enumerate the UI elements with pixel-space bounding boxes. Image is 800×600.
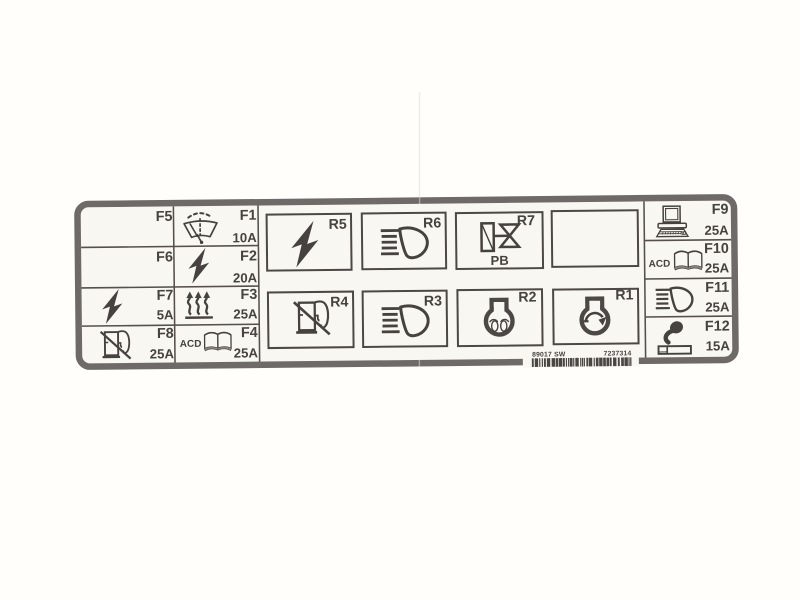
svg-text:7237314: 7237314 xyxy=(604,350,632,357)
svg-text:F2: F2 xyxy=(240,248,257,264)
svg-text:PB: PB xyxy=(491,253,509,268)
svg-text:F4: F4 xyxy=(241,325,258,341)
svg-text:25A: 25A xyxy=(233,306,258,321)
svg-text:F6: F6 xyxy=(156,249,173,265)
svg-text:R7: R7 xyxy=(517,213,535,229)
svg-text:15A: 15A xyxy=(706,338,731,353)
svg-text:10A: 10A xyxy=(232,230,257,245)
svg-text:20A: 20A xyxy=(233,270,258,285)
svg-text:F12: F12 xyxy=(705,318,730,334)
svg-text:R6: R6 xyxy=(423,215,441,231)
svg-text:F7: F7 xyxy=(156,288,173,304)
svg-text:F11: F11 xyxy=(705,280,729,296)
svg-text:F10: F10 xyxy=(704,241,729,257)
svg-text:5A: 5A xyxy=(157,307,174,322)
svg-text:ACD: ACD xyxy=(180,339,202,350)
svg-text:F1: F1 xyxy=(240,208,257,224)
svg-text:R1: R1 xyxy=(615,287,633,303)
svg-text:25A: 25A xyxy=(234,345,259,360)
svg-text:F8: F8 xyxy=(157,326,174,342)
svg-text:F5: F5 xyxy=(156,209,173,225)
svg-text:R3: R3 xyxy=(424,293,442,309)
svg-text:89017 SW: 89017 SW xyxy=(532,351,566,358)
svg-text:F3: F3 xyxy=(240,287,257,303)
svg-text:25A: 25A xyxy=(150,346,175,361)
svg-text:25A: 25A xyxy=(705,299,730,314)
svg-text:ACD: ACD xyxy=(649,259,671,270)
svg-text:R5: R5 xyxy=(328,217,346,233)
svg-text:R2: R2 xyxy=(518,290,536,306)
svg-text:F9: F9 xyxy=(712,202,729,218)
svg-text:25A: 25A xyxy=(704,223,729,238)
svg-text:R4: R4 xyxy=(330,294,348,310)
svg-text:25A: 25A xyxy=(705,260,730,275)
